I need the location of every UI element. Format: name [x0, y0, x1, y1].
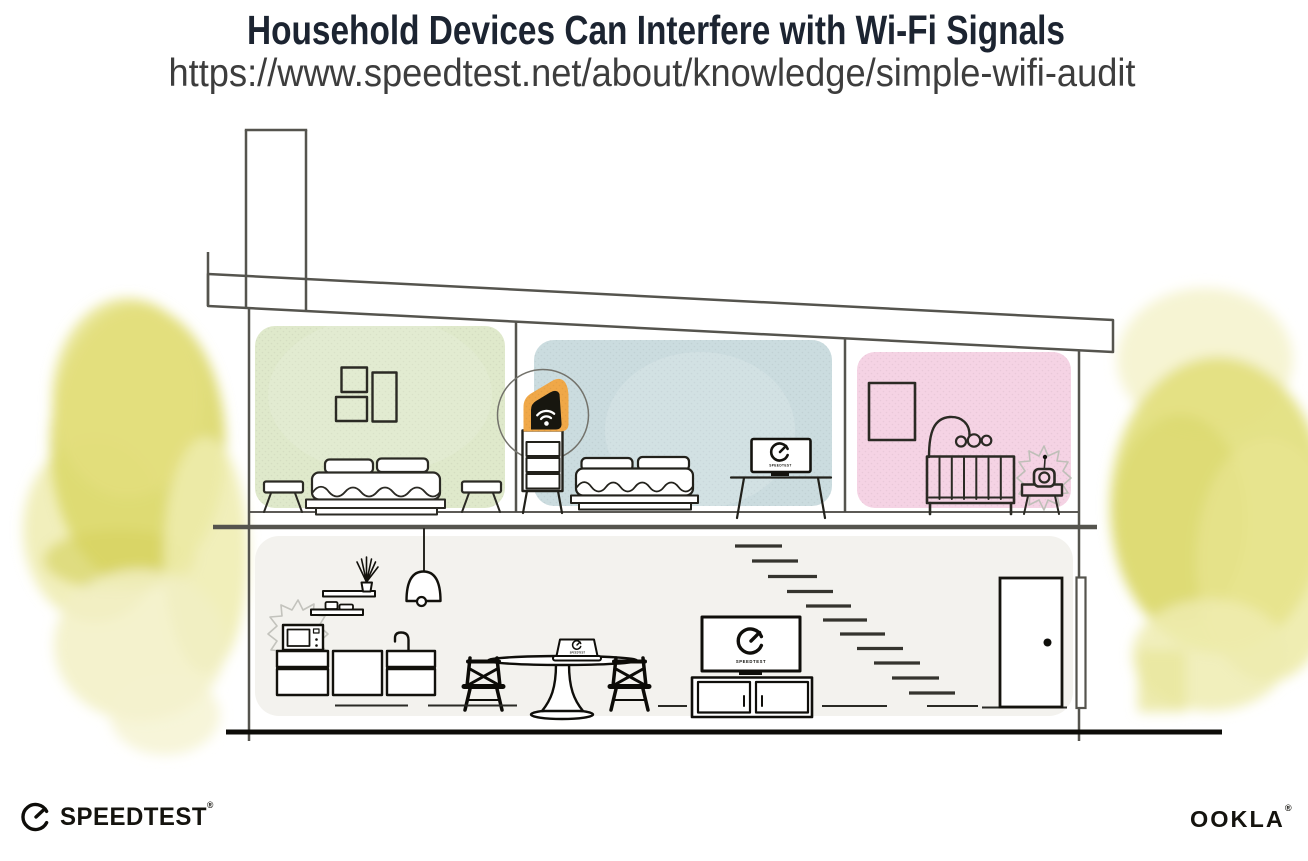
- speedtest-logo: SPEEDTEST®: [20, 801, 220, 833]
- downspout: [1077, 578, 1086, 709]
- laptop-icon: SPEEDTEST: [553, 640, 601, 661]
- ookla-logo-text: OOKLA®: [1190, 806, 1294, 833]
- svg-text:SPEEDTEST: SPEEDTEST: [570, 653, 586, 655]
- speedtest-gauge-icon: [20, 801, 52, 833]
- wifi-router-icon: [524, 379, 569, 432]
- right-tree: [1110, 288, 1308, 712]
- tv-console: [692, 678, 812, 718]
- infographic-page: Household Devices Can Interfere with Wi-…: [0, 0, 1308, 861]
- registered-mark: ®: [207, 800, 214, 810]
- tv-area: SPEEDTEST: [692, 617, 812, 717]
- ookla-logo: OOKLA®: [1192, 806, 1294, 833]
- mobile-bead-2: [968, 434, 980, 446]
- kitchen-counters: [277, 651, 435, 695]
- entry-door: [1000, 578, 1062, 707]
- speedtest-logo-text: SPEEDTEST®: [60, 803, 214, 832]
- chimney: [246, 130, 306, 278]
- microwave-icon: [283, 625, 323, 650]
- house-illustration: Household Devices Can Interfere with Wi-…: [0, 0, 1308, 861]
- page-url: https://www.speedtest.net/about/knowledg…: [169, 52, 1136, 95]
- svg-text:SPEEDTEST: SPEEDTEST: [736, 659, 766, 664]
- mobile-bead-3: [982, 436, 992, 446]
- door-knob: [1044, 639, 1052, 647]
- svg-text:SPEEDTEST: SPEEDTEST: [769, 464, 792, 468]
- mobile-bead-1: [956, 437, 966, 447]
- registered-mark: ®: [1285, 803, 1294, 813]
- page-title: Household Devices Can Interfere with Wi-…: [247, 7, 1065, 53]
